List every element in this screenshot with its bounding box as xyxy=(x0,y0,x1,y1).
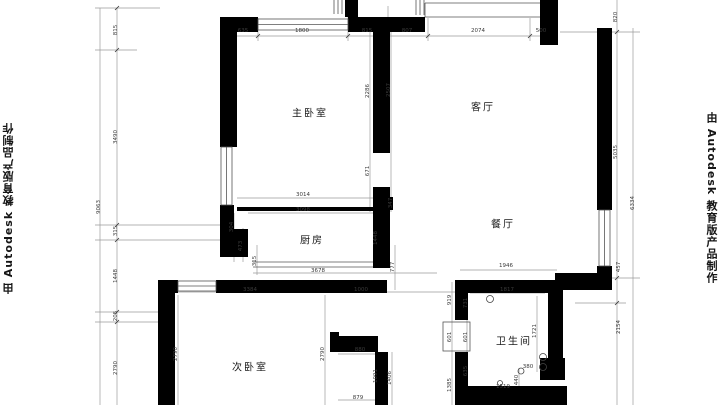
dimension-label: 879 xyxy=(353,395,364,401)
dimension-label: 777 xyxy=(390,262,396,273)
dimension-label: 315 xyxy=(113,226,119,237)
dimension-label: 601 xyxy=(447,332,453,343)
dimension-label: 473 xyxy=(238,241,244,252)
autodesk-watermark-right: 由 Autodesk 教育版产品制作 xyxy=(703,112,719,284)
dimension-label: 6334 xyxy=(630,196,636,210)
dimension-label: 3098 xyxy=(296,207,310,213)
dimension-label: 1385 xyxy=(447,378,453,392)
dimension-label: 601 xyxy=(463,332,469,343)
room-label-living-room: 客厅 xyxy=(471,99,495,114)
dimension-label: 3014 xyxy=(296,192,310,198)
dimension-label: 635 xyxy=(238,28,249,34)
dimension-label: 2286 xyxy=(365,84,371,98)
dimension-label: 1721 xyxy=(532,324,538,338)
dimension-label: 815 xyxy=(113,25,119,36)
dimension-label: 457 xyxy=(616,262,622,273)
dimension-label: 1519 xyxy=(496,384,510,390)
labels-layer: 主卧室客厅餐厅厨房次卧室卫生间6351800815807207450081534… xyxy=(0,0,720,405)
room-label-master-bedroom: 主卧室 xyxy=(292,105,328,120)
dimension-label: 2790 xyxy=(320,347,326,361)
dimension-label: 671 xyxy=(365,166,371,177)
dimension-label: 315 xyxy=(252,256,258,267)
dimension-label: 3490 xyxy=(113,130,119,144)
dimension-label: 380 xyxy=(523,364,534,370)
dimension-label: 205 xyxy=(113,311,119,322)
dimension-label: 2507 xyxy=(386,83,392,97)
dimension-label: 5035 xyxy=(613,145,619,159)
dimension-label: 440 xyxy=(514,375,520,386)
room-label-dining-room: 餐厅 xyxy=(491,216,515,231)
dimension-label: 1448 xyxy=(373,231,379,245)
dimension-label: 1000 xyxy=(354,287,368,293)
dimension-label: 500 xyxy=(536,28,547,34)
dimension-label: 304 xyxy=(229,222,235,233)
dimension-label: 1946 xyxy=(499,263,513,269)
dimension-label: 2790 xyxy=(113,361,119,375)
dimension-label: 1406 xyxy=(387,371,393,385)
room-label-bathroom: 卫生间 xyxy=(496,333,532,348)
dimension-label: 2074 xyxy=(471,28,485,34)
dimension-label: 1448 xyxy=(113,269,119,283)
room-label-second-bedroom: 次卧室 xyxy=(232,359,268,374)
dimension-label: 3384 xyxy=(243,287,257,293)
dimension-label: 1800 xyxy=(295,28,309,34)
autodesk-watermark-left: 由 Autodesk 教育版产品制作 xyxy=(1,122,17,294)
dimension-label: 815 xyxy=(362,28,373,34)
dimension-label: 9063 xyxy=(96,200,102,214)
dimension-label: 919 xyxy=(447,295,453,306)
dimension-label: 820 xyxy=(613,12,619,23)
dimension-label: 635 xyxy=(463,366,469,377)
room-label-kitchen: 厨房 xyxy=(300,232,324,247)
floor-plan-canvas: 主卧室客厅餐厅厨房次卧室卫生间6351800815807207450081534… xyxy=(0,0,720,405)
dimension-label: 880 xyxy=(355,347,366,353)
dimension-label: 2790 xyxy=(173,347,179,361)
dimension-label: 1091 xyxy=(373,369,379,383)
dimension-label: 2154 xyxy=(616,320,622,334)
dimension-label: 731 xyxy=(463,298,469,309)
dimension-label: 3678 xyxy=(311,268,325,274)
dimension-label: 1817 xyxy=(500,287,514,293)
dimension-label: 807 xyxy=(402,28,413,34)
dimension-label: 347 xyxy=(388,198,394,209)
